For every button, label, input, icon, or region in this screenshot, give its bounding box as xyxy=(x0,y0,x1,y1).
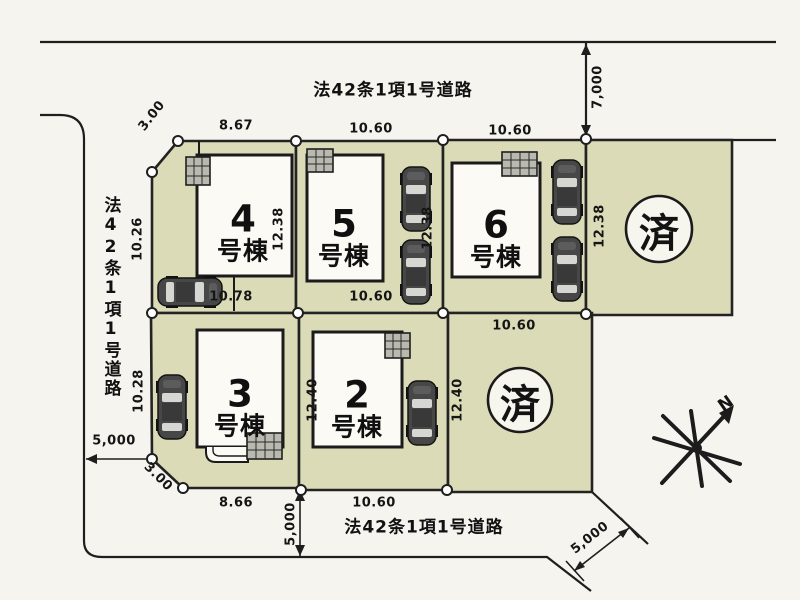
lot-6-label: 6 号棟 xyxy=(470,206,522,269)
lot-6-number: 6 xyxy=(470,206,522,244)
lot-3-label: 3 号棟 xyxy=(214,375,266,438)
dim-lot3-bottom: 8.66 xyxy=(219,496,253,511)
dim-lot5-right: 12.38 xyxy=(421,206,436,250)
dim-lot2-bottom: 10.60 xyxy=(352,496,396,511)
left-road-label: 法42条1項1号道路 xyxy=(99,196,124,398)
lot-2-number: 2 xyxy=(331,376,383,414)
equipment-icon-lot6 xyxy=(502,152,537,176)
dim-lot6-right: 12.38 xyxy=(593,204,608,248)
dim-lot4-right: 12.38 xyxy=(272,207,287,251)
car-icon-lot3 xyxy=(156,375,188,439)
dim-lot4-left: 10.26 xyxy=(131,217,146,261)
dim-left-road-width: 5,000 xyxy=(92,434,136,449)
dim-lot5-top: 10.60 xyxy=(349,122,393,137)
dim-arrow-right-road-top xyxy=(581,44,591,55)
lot-3-suffix: 号棟 xyxy=(214,413,266,439)
lot-2-suffix: 号棟 xyxy=(331,414,383,440)
dim-lot4-top: 8.67 xyxy=(219,119,253,134)
lot-4-number: 4 xyxy=(217,200,269,238)
lot-3-number: 3 xyxy=(214,375,266,413)
car-icon-lot2 xyxy=(406,381,438,445)
lot-2-label: 2 号棟 xyxy=(331,376,383,439)
compass-icon xyxy=(654,405,740,486)
dim-right-road-width: 7,000 xyxy=(591,65,606,109)
equipment-icon-lot4 xyxy=(186,157,210,185)
dim-arrow-bottom-road-bottom xyxy=(295,545,305,556)
dim-lot2-right: 12.40 xyxy=(451,378,466,422)
dim-sold-bottom-top: 10.60 xyxy=(492,319,536,334)
dim-lot5-bottom: 10.60 xyxy=(349,290,393,305)
site-plan: 法42条1項1号道路 法42条1項1号道路 法42条1項1号道路 4 号棟 5 … xyxy=(0,0,800,600)
sold-mark-bottom: 済 xyxy=(500,372,540,430)
dim-lot2-left: 12.40 xyxy=(306,378,321,422)
car-icon-lot6-a xyxy=(551,160,583,224)
dim-lot4-bottom: 10.78 xyxy=(209,290,253,305)
top-road-label: 法42条1項1号道路 xyxy=(313,76,472,101)
dim-arrow-bottom-right-2 xyxy=(618,528,629,538)
lot-5-number: 5 xyxy=(318,205,370,243)
lot-5-label: 5 号棟 xyxy=(318,205,370,268)
equipment-icon-lot2 xyxy=(385,333,410,358)
lot-4-label: 4 号棟 xyxy=(217,200,269,263)
dim-arrow-bottom-right-1 xyxy=(574,561,585,571)
dim-lot3-left: 10.28 xyxy=(132,369,147,413)
bottom-road-label: 法42条1項1号道路 xyxy=(344,513,503,538)
lot-5-suffix: 号棟 xyxy=(318,243,370,269)
lot-6-suffix: 号棟 xyxy=(470,244,522,270)
sold-mark-top: 済 xyxy=(639,201,679,259)
dim-bottom-road-width: 5,000 xyxy=(284,502,299,546)
dim-lot6-top: 10.60 xyxy=(488,124,532,139)
equipment-icon-lot5 xyxy=(307,149,333,172)
lot-4-suffix: 号棟 xyxy=(217,238,269,264)
car-icon-lot6-b xyxy=(551,237,583,301)
dim-arrow-left-road xyxy=(86,454,97,464)
